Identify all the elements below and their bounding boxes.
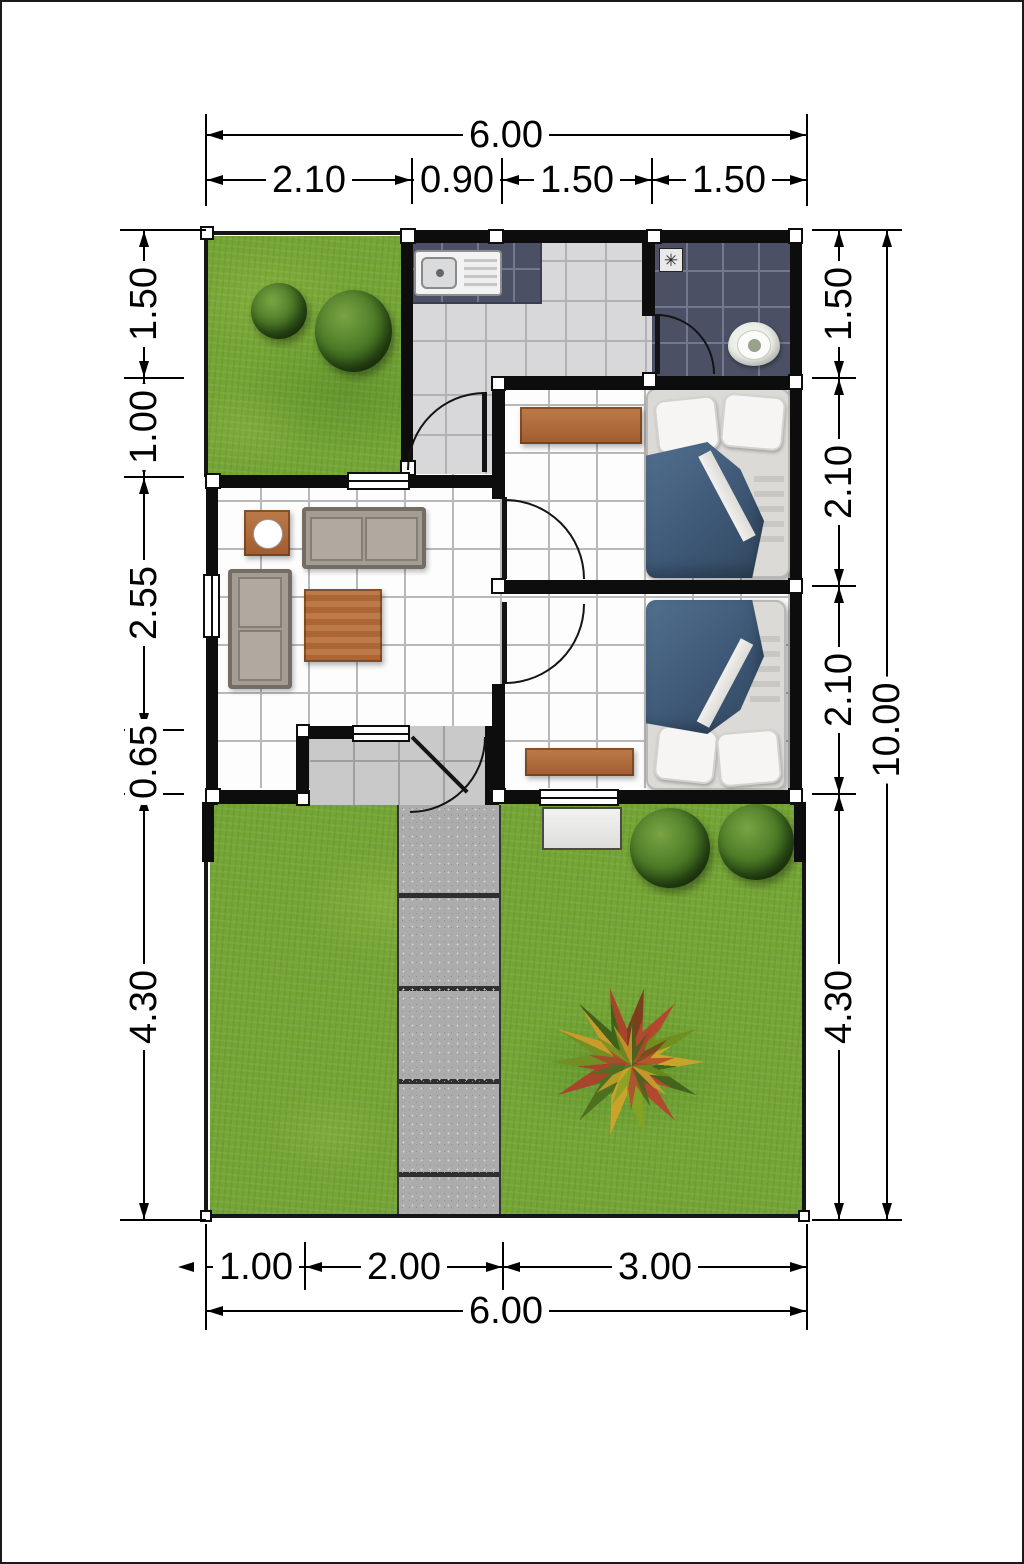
dim-label-bottom-seg1: 1.00 — [213, 1248, 299, 1286]
side-table — [244, 510, 290, 556]
kitchen-sink-icon — [414, 250, 502, 296]
dim-label-bottom-seg3: 3.00 — [612, 1248, 698, 1286]
fence — [204, 1214, 806, 1218]
pillow — [716, 728, 782, 787]
toilet-drain-hole — [748, 339, 761, 352]
wall-bed1-bed2 — [492, 580, 802, 594]
squat-toilet-icon — [728, 322, 780, 366]
dim-label-top-seg1: 2.10 — [266, 161, 352, 199]
fence — [802, 862, 806, 1218]
floor-plan: ✳ — [0, 0, 1024, 1564]
dim-label-left-seg5: 4.30 — [125, 964, 163, 1050]
ext-line — [120, 229, 206, 231]
back-yard-grass — [210, 800, 802, 1216]
side-table-top — [253, 519, 283, 549]
garden-walkway — [397, 805, 501, 1218]
sink-faucet — [436, 269, 444, 277]
floor-drain-icon: ✳ — [659, 248, 683, 272]
column-marker — [400, 228, 416, 244]
dim-label-right-total: 10.00 — [868, 676, 906, 783]
coffee-table — [304, 589, 382, 662]
column-marker — [788, 788, 803, 804]
garden-bush-icon — [251, 283, 307, 339]
wall-east — [790, 230, 802, 805]
dim-label-right-seg4: 4.30 — [820, 964, 858, 1050]
column-marker — [205, 788, 221, 804]
column-marker — [646, 229, 662, 244]
dim-label-top-total: 6.00 — [463, 116, 549, 154]
dim-label-bottom-total: 6.00 — [463, 1292, 549, 1330]
ext-line — [124, 476, 184, 478]
column-marker — [788, 228, 803, 244]
floor-drain-glyph: ✳ — [664, 252, 678, 269]
window-porch — [352, 725, 410, 742]
ext-line — [124, 377, 184, 379]
fence-yard-left-thick — [202, 802, 214, 862]
column-marker — [798, 1210, 810, 1222]
fence — [204, 862, 208, 1218]
sofa-two-seat-left — [228, 569, 292, 689]
dim-label-right-seg3: 2.10 — [820, 647, 858, 733]
wall-bathroom-west — [642, 238, 655, 316]
ext-line — [120, 1219, 206, 1221]
dim-label-left-seg4: 0.65 — [125, 719, 163, 805]
yard-bush-icon — [718, 804, 794, 880]
wall-bedrooms-west-b — [492, 472, 505, 499]
dim-label-left-seg2: 1.00 — [125, 384, 163, 470]
wall-west — [206, 475, 218, 805]
dim-label-bottom-seg2: 2.00 — [361, 1248, 447, 1286]
dim-label-top-seg4: 1.50 — [686, 161, 772, 199]
ext-line — [205, 114, 207, 206]
porch-wall-north — [309, 726, 353, 739]
ext-line — [812, 1219, 902, 1221]
pillow — [720, 392, 786, 451]
window-garden-living — [347, 472, 410, 490]
yard-bush-icon — [630, 808, 710, 888]
back-step — [542, 807, 622, 850]
window-living-west — [203, 574, 220, 638]
wall-bedrooms-west-a — [492, 390, 505, 474]
wall-top — [401, 230, 802, 243]
fence — [206, 231, 407, 235]
dim-label-right-seg1: 1.50 — [820, 261, 858, 347]
garden-bush-icon — [315, 290, 392, 372]
column-marker — [488, 229, 504, 244]
column-marker — [491, 376, 506, 391]
bedroom1-desk — [520, 407, 642, 444]
bedroom2-desk — [525, 748, 634, 776]
ext-line — [806, 1224, 808, 1330]
bedroom1-bed — [646, 388, 790, 578]
window-bedroom2-south — [539, 789, 619, 806]
column-marker — [296, 724, 310, 738]
dim-label-right-seg2: 2.10 — [820, 439, 858, 525]
column-marker — [642, 372, 657, 388]
ext-line — [806, 114, 808, 206]
sofa-two-seat-top — [302, 507, 426, 569]
column-marker — [788, 578, 803, 594]
dim-label-top-seg2: 0.90 — [414, 161, 500, 199]
column-marker — [296, 792, 310, 806]
wall-south-west — [206, 790, 310, 804]
column-marker — [788, 374, 803, 390]
fence-yard-right-thick — [794, 802, 806, 862]
column-marker — [205, 473, 221, 489]
fence — [204, 231, 208, 477]
column-marker — [491, 788, 506, 804]
dim-label-left-seg1: 1.50 — [125, 261, 163, 347]
sink-drainboard — [464, 259, 497, 288]
dim-label-top-seg3: 1.50 — [534, 161, 620, 199]
dim-label-left-seg3: 2.55 — [125, 560, 163, 646]
bedroom2-bed — [646, 600, 786, 790]
column-marker — [491, 578, 506, 594]
pillow — [653, 725, 718, 785]
